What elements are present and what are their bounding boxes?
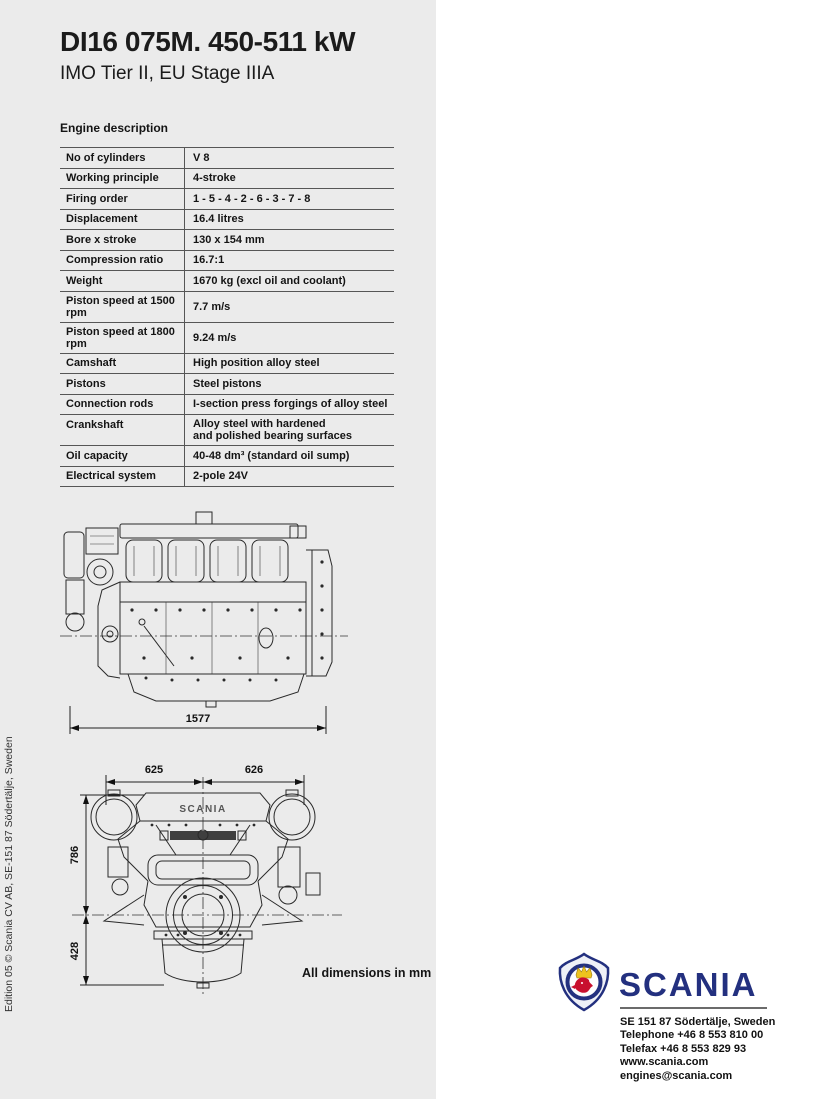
front-view-left-width-label: 625 xyxy=(145,764,163,776)
row-value: 1 - 5 - 4 - 2 - 6 - 3 - 7 - 8 xyxy=(185,189,394,209)
row-value: 40-48 dm³ (standard oil sump) xyxy=(185,446,394,466)
front-view-lower-height-label: 428 xyxy=(69,942,81,960)
row-label: No of cylinders xyxy=(60,148,185,168)
scania-wordmark: SCANIA xyxy=(619,966,758,1004)
row-value: 4-stroke xyxy=(185,169,394,189)
table-row: CrankshaftAlloy steel with hardenedand p… xyxy=(60,415,394,446)
row-value: 16.7:1 xyxy=(185,251,394,271)
spec-sheet-page: DI16 075M. 450-511 kW IMO Tier II, EU St… xyxy=(0,0,830,1099)
table-row: Bore x stroke130 x 154 mm xyxy=(60,230,394,251)
dimensions-note: All dimensions in mm xyxy=(302,966,431,980)
footer-address: SE 151 87 Södertälje, Sweden xyxy=(620,1016,775,1029)
edition-note: Edition 05 © Scania CV AB, SE-151 87 Söd… xyxy=(3,736,15,1012)
row-value-line2: and polished bearing surfaces xyxy=(193,430,352,442)
table-row: Firing order1 - 5 - 4 - 2 - 6 - 3 - 7 - … xyxy=(60,189,394,210)
front-view-height-dimensions xyxy=(80,795,164,985)
row-label: Piston speed at 1800 rpm xyxy=(60,323,185,353)
row-label: Connection rods xyxy=(60,395,185,415)
table-row: PistonsSteel pistons xyxy=(60,374,394,395)
table-row: Connection rodsI-section press forgings … xyxy=(60,395,394,416)
page-title: DI16 075M. 450-511 kW xyxy=(60,26,355,58)
table-row: CamshaftHigh position alloy steel xyxy=(60,354,394,375)
row-value: 1670 kg (excl oil and coolant) xyxy=(185,271,394,291)
table-row: No of cylindersV 8 xyxy=(60,148,394,169)
row-value: 9.24 m/s xyxy=(185,323,394,353)
scania-griffin-logo xyxy=(556,951,612,1013)
row-value-line1: Alloy steel with hardened xyxy=(193,418,326,430)
row-value: High position alloy steel xyxy=(185,354,394,374)
footer-contact-block: SE 151 87 Södertälje, Sweden Telephone +… xyxy=(620,1016,775,1083)
row-label: Bore x stroke xyxy=(60,230,185,250)
front-view-upper-height-label: 786 xyxy=(69,846,81,864)
page-subtitle: IMO Tier II, EU Stage IIIA xyxy=(60,63,274,85)
row-value: 7.7 m/s xyxy=(185,292,394,322)
row-value: 16.4 litres xyxy=(185,210,394,230)
row-label: Oil capacity xyxy=(60,446,185,466)
table-row: Electrical system2-pole 24V xyxy=(60,467,394,488)
row-label: Camshaft xyxy=(60,354,185,374)
footer-telephone: Telephone +46 8 553 810 00 xyxy=(620,1029,775,1042)
row-value: 2-pole 24V xyxy=(185,467,394,487)
table-row: Displacement16.4 litres xyxy=(60,210,394,231)
table-row: Piston speed at 1500 rpm7.7 m/s xyxy=(60,292,394,323)
table-row: Working principle4-stroke xyxy=(60,169,394,190)
row-label: Crankshaft xyxy=(60,415,185,445)
row-value: I-section press forgings of alloy steel xyxy=(185,395,394,415)
engine-front-view-drawing: 625 626 786 428 xyxy=(56,755,356,1000)
table-row: Weight1670 kg (excl oil and coolant) xyxy=(60,271,394,292)
table-row: Compression ratio16.7:1 xyxy=(60,251,394,272)
side-view-length-label: 1577 xyxy=(186,713,210,725)
row-label: Weight xyxy=(60,271,185,291)
row-label: Electrical system xyxy=(60,467,185,487)
row-label: Working principle xyxy=(60,169,185,189)
row-label: Firing order xyxy=(60,189,185,209)
footer-website[interactable]: www.scania.com xyxy=(620,1056,775,1069)
row-label: Pistons xyxy=(60,374,185,394)
row-value: V 8 xyxy=(185,148,394,168)
row-label: Piston speed at 1500 rpm xyxy=(60,292,185,322)
row-label: Displacement xyxy=(60,210,185,230)
footer-telefax: Telefax +46 8 553 829 93 xyxy=(620,1043,775,1056)
table-row: Piston speed at 1800 rpm9.24 m/s xyxy=(60,323,394,354)
front-view-width-dimensions xyxy=(106,775,304,805)
footer-divider xyxy=(620,1007,767,1009)
engine-spec-table: No of cylindersV 8 Working principle4-st… xyxy=(60,147,394,487)
engine-description-heading: Engine description xyxy=(60,121,168,135)
front-view-right-width-label: 626 xyxy=(245,764,263,776)
row-value: 130 x 154 mm xyxy=(185,230,394,250)
row-value: Steel pistons xyxy=(185,374,394,394)
footer-email[interactable]: engines@scania.com xyxy=(620,1070,775,1083)
table-row: Oil capacity40-48 dm³ (standard oil sump… xyxy=(60,446,394,467)
engine-scania-label: SCANIA xyxy=(179,804,226,815)
row-label: Compression ratio xyxy=(60,251,185,271)
engine-side-view-drawing: 1577 xyxy=(56,506,356,751)
row-value: Alloy steel with hardenedand polished be… xyxy=(185,415,394,445)
intercooler-grille xyxy=(170,831,236,840)
